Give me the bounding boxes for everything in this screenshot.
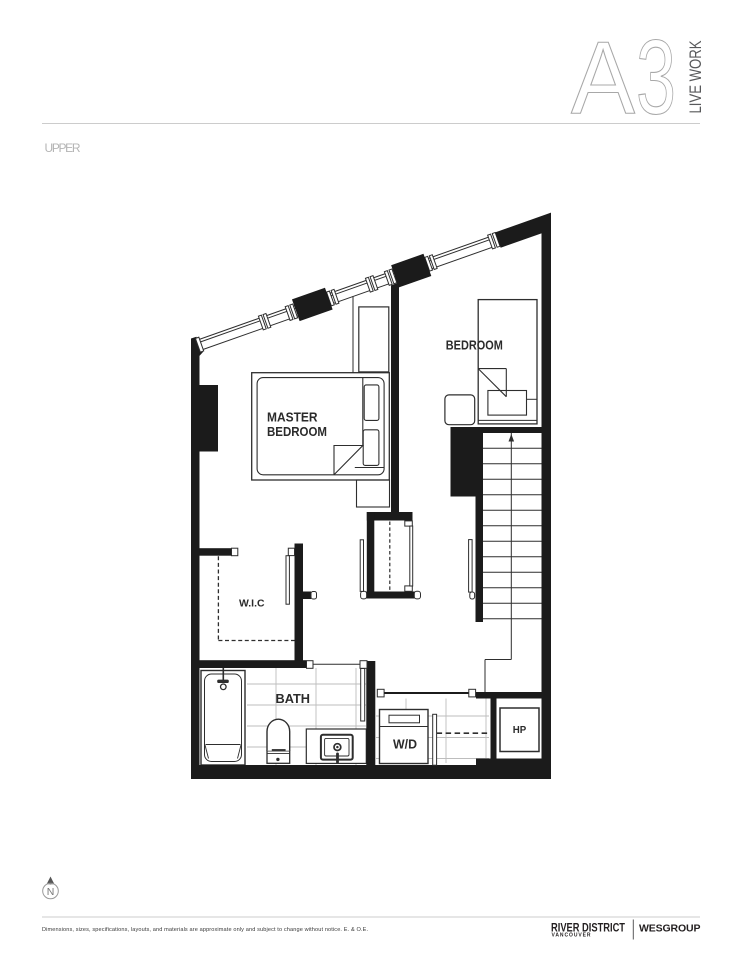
svg-text:BATH: BATH <box>276 691 311 706</box>
svg-text:HP: HP <box>513 725 527 736</box>
svg-text:MASTER: MASTER <box>267 410 318 425</box>
svg-text:VANCOUVER: VANCOUVER <box>552 932 591 938</box>
svg-text:BEDROOM: BEDROOM <box>446 337 503 352</box>
svg-text:3: 3 <box>636 19 676 137</box>
svg-text:LIVE WORK: LIVE WORK <box>687 41 705 114</box>
svg-text:BEDROOM: BEDROOM <box>267 424 327 439</box>
svg-text:A: A <box>571 21 635 136</box>
svg-text:W/D: W/D <box>393 737 417 751</box>
svg-text:Dimensions, sizes, specificati: Dimensions, sizes, specifications, layou… <box>42 927 368 933</box>
svg-text:N: N <box>47 886 55 898</box>
svg-text:UPPER: UPPER <box>45 141 81 155</box>
svg-text:WESGROUP: WESGROUP <box>639 923 701 935</box>
svg-text:W.I.C: W.I.C <box>239 597 265 609</box>
